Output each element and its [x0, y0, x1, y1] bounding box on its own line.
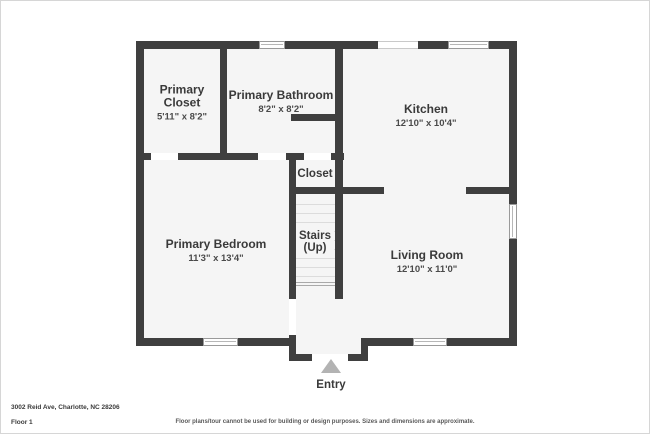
room-name: Primary Bedroom [166, 238, 267, 251]
window-kitchen-north-left [378, 41, 418, 49]
stairs-name: Stairs [299, 230, 331, 242]
room-name: Kitchen [395, 103, 456, 116]
wall-bathroom-kitchen-divider [335, 49, 343, 299]
label-stairs: Stairs (Up) [296, 229, 334, 255]
label-primary-bathroom: Primary Bathroom 8'2" x 8'2" [229, 89, 334, 115]
wall-closet-bathroom-divider [220, 49, 227, 160]
stair-tread [296, 213, 335, 214]
stair-tread [296, 267, 335, 268]
window-bathroom-north [259, 41, 285, 49]
door-primary-bedroom [289, 299, 296, 335]
label-primary-closet: Primary Closet 5'11" x 8'2" [146, 84, 218, 123]
wall-west [136, 41, 144, 346]
room-dims: 12'10" x 11'0" [391, 264, 464, 275]
wall-kitchen-living-stub [466, 187, 517, 194]
stair-tread [296, 276, 335, 277]
door-hall-closet [304, 153, 331, 160]
window-kitchen-north-right [448, 41, 489, 49]
room-name: Closet [297, 168, 332, 180]
room-dims: 8'2" x 8'2" [229, 104, 334, 115]
label-primary-bedroom: Primary Bedroom 11'3" x 13'4" [166, 238, 267, 264]
property-address: 3002 Reid Ave, Charlotte, NC 28206 [11, 404, 120, 411]
window-bedroom-south [203, 338, 238, 346]
label-closet: Closet [297, 168, 332, 180]
floor-plan-canvas: Primary Closet 5'11" x 8'2" Primary Bath… [0, 0, 650, 434]
label-kitchen: Kitchen 12'10" x 10'4" [395, 103, 456, 129]
room-dims: 12'10" x 10'4" [395, 118, 456, 129]
stair-tread [296, 285, 335, 286]
wall-closet-south [289, 187, 384, 194]
stair-tread [296, 222, 335, 223]
label-living-room: Living Room 12'10" x 11'0" [391, 249, 464, 275]
entry-name: Entry [316, 379, 345, 391]
window-living-south [413, 338, 447, 346]
room-dims: 11'3" x 13'4" [166, 253, 267, 264]
wall-bathroom-stub [291, 114, 343, 121]
stair-tread [296, 204, 335, 205]
window-living-east [509, 204, 517, 239]
door-primary-bathroom [258, 153, 286, 160]
label-entry: Entry [316, 379, 345, 391]
stair-tread [296, 282, 335, 283]
room-name: Living Room [391, 249, 464, 262]
room-name: Primary Closet [146, 84, 218, 110]
entry-arrow-icon [321, 359, 341, 373]
stairs-direction: (Up) [299, 242, 331, 254]
room-dims: 5'11" x 8'2" [146, 112, 218, 123]
stair-tread [296, 258, 335, 259]
room-name: Primary Bathroom [229, 89, 334, 102]
door-primary-closet [151, 153, 178, 160]
disclaimer-text: Floor plans/tour cannot be used for buil… [1, 419, 649, 425]
wall-alcove-east [361, 338, 368, 361]
